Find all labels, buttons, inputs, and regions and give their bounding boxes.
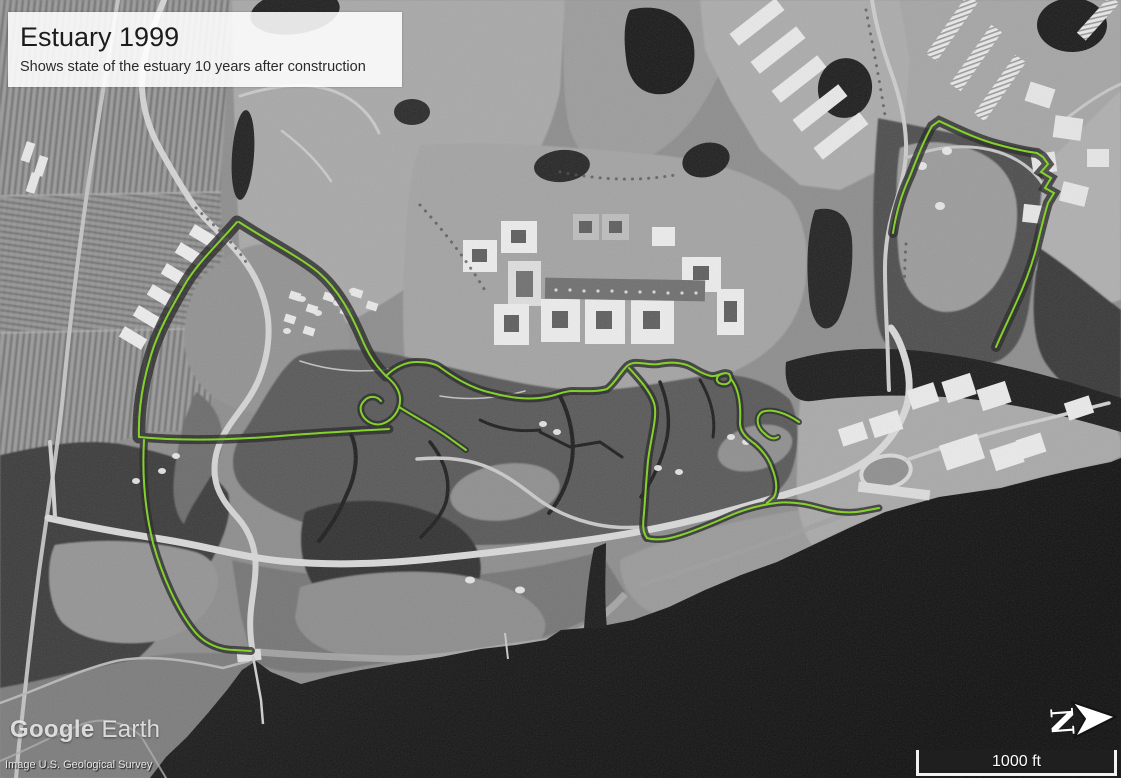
map-title: Estuary 1999 bbox=[20, 22, 388, 53]
map-title-card: Estuary 1999 Shows state of the estuary … bbox=[8, 12, 402, 87]
compass-north-label: N bbox=[1046, 706, 1080, 737]
map-subtitle: Shows state of the estuary 10 years afte… bbox=[20, 59, 388, 75]
scale-bar-label: 1000 ft bbox=[992, 754, 1041, 770]
satellite-imagery bbox=[0, 0, 1121, 778]
logo-earth: Earth bbox=[101, 716, 160, 743]
logo-google: Google bbox=[10, 716, 94, 743]
imagery-attribution: Image U.S. Geological Survey bbox=[5, 759, 152, 771]
compass-north-arrow[interactable]: N bbox=[1046, 696, 1120, 744]
google-earth-viewport[interactable]: Estuary 1999 Shows state of the estuary … bbox=[0, 0, 1121, 778]
film-grain bbox=[0, 0, 1121, 778]
google-earth-logo: GoogleEarth bbox=[10, 716, 160, 744]
scale-bar: 1000 ft bbox=[916, 750, 1117, 776]
